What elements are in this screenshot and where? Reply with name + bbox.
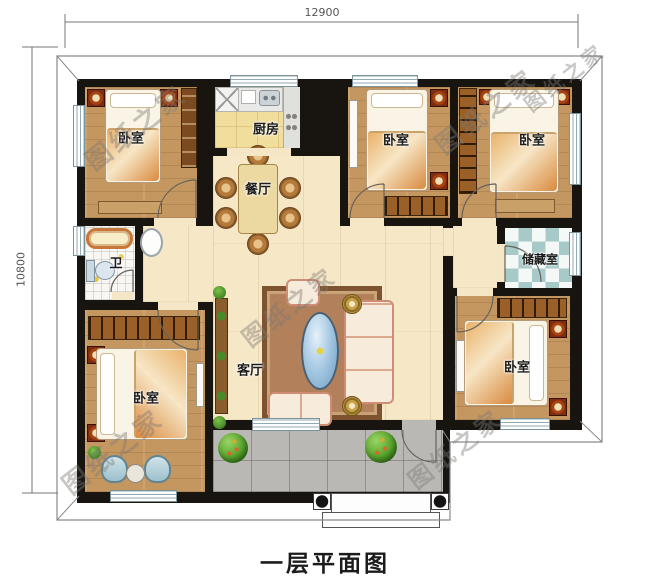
- plan-title: 一层平面图: [260, 544, 390, 578]
- floor-plan: 卧室 厨房 餐厅 卧室 卧室 卫 储藏室 客厅 卧室 卧室 12900 1080…: [0, 0, 650, 583]
- room-label-bedroom-bottom-right: 卧室: [504, 357, 530, 376]
- room-label-kitchen: 厨房: [253, 119, 279, 138]
- room-label-bedroom-bottom-left: 卧室: [133, 388, 159, 407]
- dimension-top-width: 12900: [305, 6, 340, 19]
- room-label-living: 客厅: [237, 360, 263, 379]
- room-label-bathroom: 卫: [109, 253, 122, 272]
- room-label-bedroom-top-right: 卧室: [519, 130, 545, 149]
- room-label-dining: 餐厅: [245, 179, 271, 198]
- dimension-left-height: 10800: [15, 240, 28, 300]
- room-label-storage: 储藏室: [522, 251, 558, 268]
- room-label-bedroom-top-middle: 卧室: [383, 130, 409, 149]
- plan-linework: [0, 0, 650, 583]
- room-label-bedroom-top-left: 卧室: [118, 128, 144, 147]
